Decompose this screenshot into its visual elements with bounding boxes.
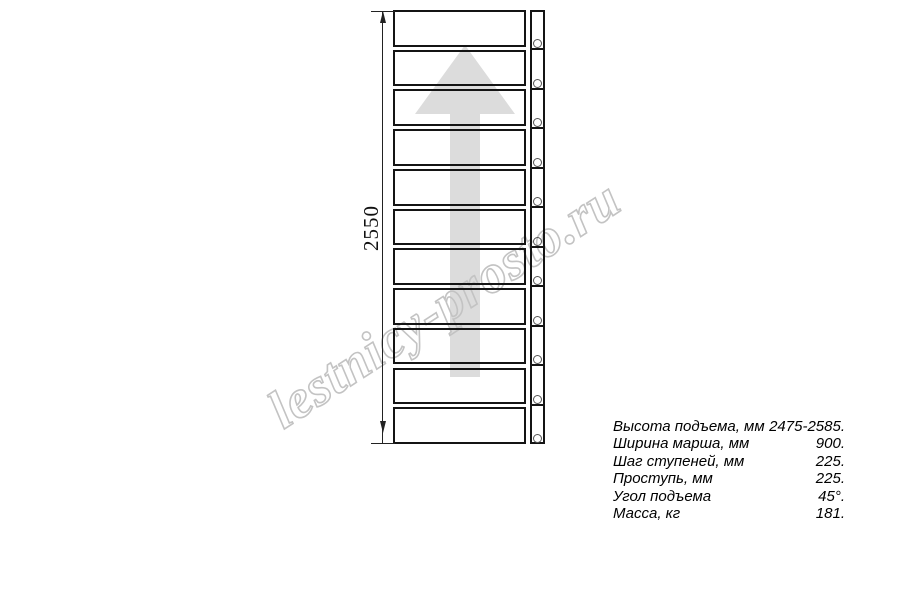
rail-divider-line: [532, 206, 543, 208]
bolt-hole-icon: [533, 395, 542, 404]
spec-label: Масса, кг: [613, 505, 680, 522]
spec-value: 45°.: [818, 488, 845, 505]
spec-value: 225.: [816, 470, 845, 487]
rail-divider-line: [532, 48, 543, 50]
spec-row: Угол подъема45°.: [613, 488, 845, 505]
stair-tread: [393, 169, 526, 206]
bolt-hole-icon: [533, 316, 542, 325]
spec-label: Ширина марша, мм: [613, 435, 749, 452]
stair-tread: [393, 209, 526, 246]
rail-divider-line: [532, 127, 543, 129]
rail-divider-line: [532, 167, 543, 169]
spec-value: 225.: [816, 453, 845, 470]
bolt-hole-icon: [533, 118, 542, 127]
spec-row: Шаг ступеней, мм225.: [613, 453, 845, 470]
bolt-hole-icon: [533, 79, 542, 88]
bolt-hole-icon: [533, 197, 542, 206]
drawing-canvas: lestnicy-prosto.ru 2550 Высота подъема, …: [0, 0, 900, 600]
stair-tread: [393, 328, 526, 365]
rail-divider-line: [532, 404, 543, 406]
spec-value: 2475-2585.: [769, 418, 845, 435]
bolt-hole-icon: [533, 434, 542, 443]
spec-row: Высота подъема, мм2475-2585.: [613, 418, 845, 435]
stair-rail-stringer: [530, 10, 545, 444]
spec-label: Высота подъема, мм: [613, 418, 765, 435]
spec-table: Высота подъема, мм2475-2585.Ширина марша…: [613, 418, 845, 522]
bolt-hole-icon: [533, 158, 542, 167]
spec-value: 900.: [816, 435, 845, 452]
rail-divider-line: [532, 88, 543, 90]
spec-label: Шаг ступеней, мм: [613, 453, 744, 470]
spec-row: Масса, кг181.: [613, 505, 845, 522]
stair-tread: [393, 288, 526, 325]
stair-tread: [393, 248, 526, 285]
dimension-arrow-up-icon: [380, 11, 386, 23]
rail-divider-line: [532, 285, 543, 287]
stair-treads: [393, 10, 526, 444]
spec-row: Проступь, мм225.: [613, 470, 845, 487]
spec-value: 181.: [816, 505, 845, 522]
stair-tread: [393, 50, 526, 87]
dimension-arrow-down-icon: [380, 421, 386, 433]
bolt-hole-icon: [533, 276, 542, 285]
stair-flight: [393, 10, 545, 444]
rail-divider-line: [532, 325, 543, 327]
stair-tread: [393, 407, 526, 444]
bolt-hole-icon: [533, 39, 542, 48]
bolt-hole-icon: [533, 237, 542, 246]
stair-tread: [393, 368, 526, 405]
spec-row: Ширина марша, мм900.: [613, 435, 845, 452]
rail-divider-line: [532, 364, 543, 366]
stair-tread: [393, 129, 526, 166]
dimension-label: 2550: [361, 198, 381, 258]
spec-label: Проступь, мм: [613, 470, 713, 487]
rail-divider-line: [532, 246, 543, 248]
spec-label: Угол подъема: [613, 488, 711, 505]
bolt-hole-icon: [533, 355, 542, 364]
stair-tread: [393, 89, 526, 126]
stair-tread: [393, 10, 526, 47]
